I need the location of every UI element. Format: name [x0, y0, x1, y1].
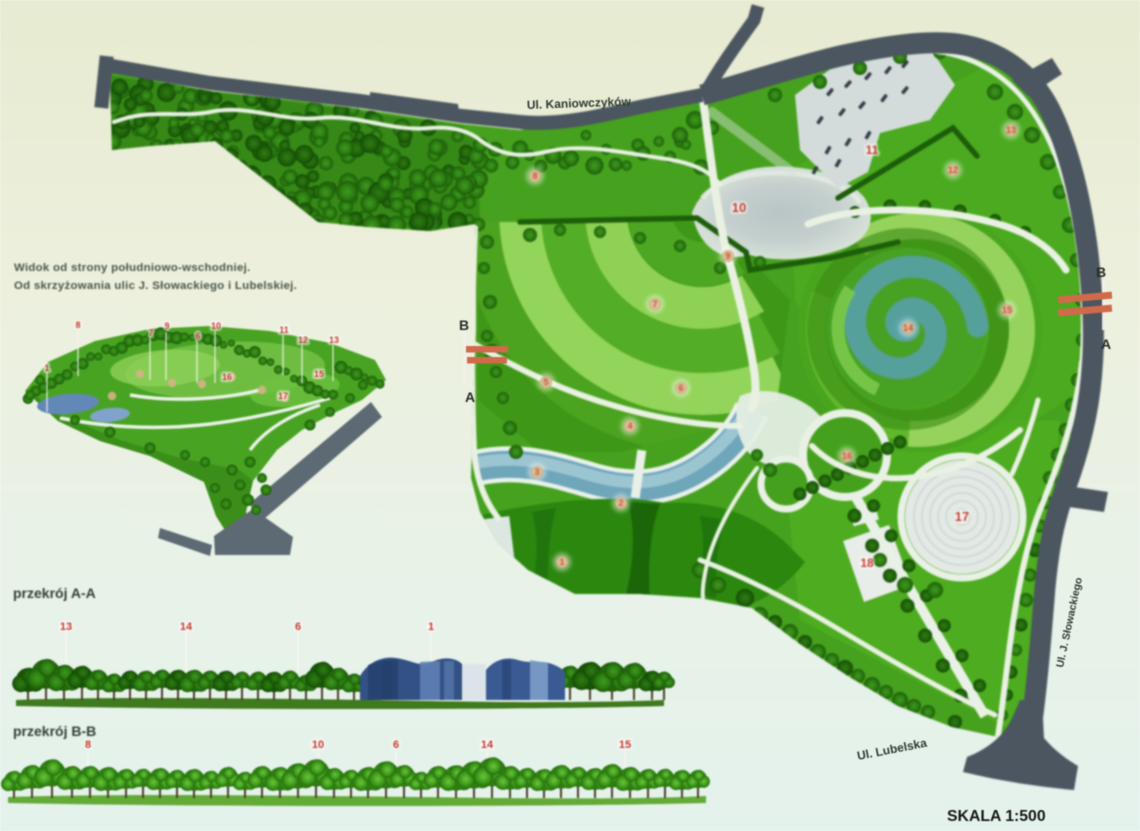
svg-text:4: 4	[627, 421, 632, 431]
svg-text:17: 17	[278, 391, 288, 401]
svg-text:13: 13	[329, 335, 339, 345]
svg-text:16: 16	[222, 372, 232, 382]
svg-text:14: 14	[481, 739, 494, 751]
svg-text:14: 14	[903, 323, 913, 333]
svg-text:7: 7	[148, 328, 153, 338]
svg-text:1: 1	[559, 557, 564, 567]
svg-text:A: A	[465, 389, 475, 405]
svg-text:6: 6	[393, 739, 399, 751]
svg-text:przekrój B-B: przekrój B-B	[13, 723, 96, 739]
svg-text:8: 8	[75, 320, 80, 330]
svg-text:Od skrzyżowania ulic J. Słowac: Od skrzyżowania ulic J. Słowackiego i Lu…	[14, 280, 297, 292]
svg-text:12: 12	[948, 165, 958, 175]
svg-text:6: 6	[295, 621, 301, 633]
svg-text:17: 17	[955, 509, 969, 524]
svg-text:A: A	[1101, 336, 1111, 352]
svg-text:B: B	[459, 317, 469, 333]
svg-text:7: 7	[652, 299, 657, 309]
svg-text:B: B	[1096, 264, 1106, 280]
svg-text:9: 9	[725, 251, 730, 261]
svg-text:1: 1	[428, 621, 434, 633]
svg-text:11: 11	[279, 325, 289, 335]
svg-text:8: 8	[532, 171, 537, 181]
svg-text:10: 10	[211, 321, 221, 331]
svg-text:13: 13	[1006, 125, 1016, 135]
svg-text:15: 15	[619, 739, 631, 751]
svg-text:przekrój A-A: przekrój A-A	[13, 585, 96, 601]
svg-text:8: 8	[85, 739, 91, 751]
svg-text:SKALA 1:500: SKALA 1:500	[947, 808, 1046, 825]
svg-text:12: 12	[298, 335, 308, 345]
svg-text:9: 9	[164, 321, 169, 331]
svg-text:10: 10	[732, 200, 746, 215]
svg-text:15: 15	[1002, 305, 1012, 315]
svg-text:6: 6	[678, 383, 683, 393]
svg-text:14: 14	[180, 621, 193, 633]
svg-text:Widok od strony południowo-wsc: Widok od strony południowo-wschodniej.	[14, 262, 251, 274]
svg-text:3: 3	[534, 467, 539, 477]
svg-text:5: 5	[543, 377, 548, 387]
svg-text:18: 18	[860, 556, 874, 570]
svg-text:11: 11	[866, 143, 879, 157]
svg-text:2: 2	[618, 498, 623, 508]
svg-text:13: 13	[60, 621, 72, 633]
svg-text:10: 10	[312, 739, 324, 751]
svg-text:6: 6	[195, 331, 200, 341]
svg-text:15: 15	[314, 369, 324, 379]
svg-text:16: 16	[842, 451, 852, 461]
svg-text:1: 1	[44, 363, 49, 373]
